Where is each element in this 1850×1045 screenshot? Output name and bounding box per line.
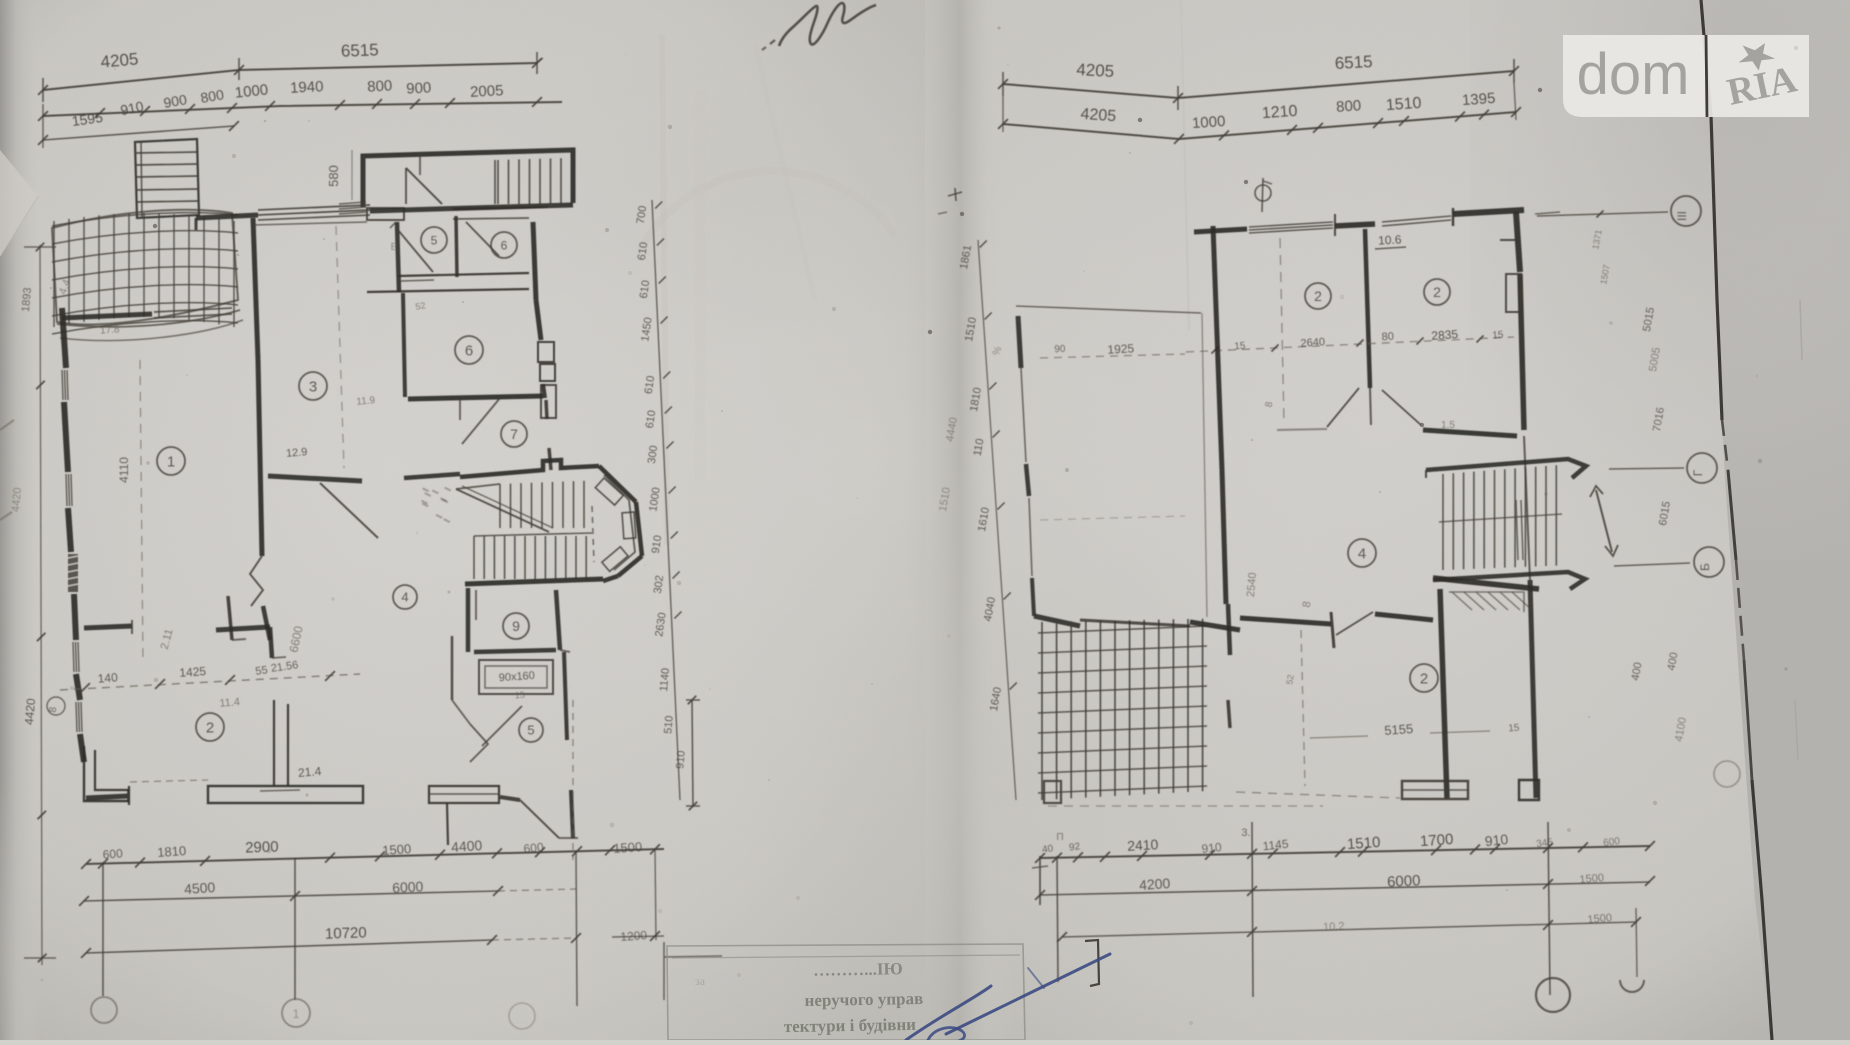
svg-text:10.2: 10.2 [1323, 920, 1345, 933]
svg-text:неручого управ: неручого управ [804, 989, 923, 1010]
svg-text:9: 9 [512, 618, 520, 634]
svg-text:Б: Б [1698, 563, 1712, 571]
svg-text:800: 800 [367, 77, 393, 95]
svg-text:III: III [1675, 211, 1689, 221]
svg-text:12.9: 12.9 [286, 446, 308, 460]
svg-text:1000: 1000 [234, 81, 269, 101]
svg-text:90x160: 90x160 [498, 670, 535, 684]
svg-text:11.4: 11.4 [219, 696, 241, 710]
svg-text:1940: 1940 [290, 78, 324, 97]
svg-text:2: 2 [206, 719, 214, 736]
svg-text:700: 700 [635, 205, 649, 225]
svg-text:4420: 4420 [22, 697, 38, 725]
svg-text:3: 3 [309, 378, 317, 395]
svg-text:302: 302 [652, 575, 666, 595]
svg-text:80: 80 [1381, 331, 1394, 344]
svg-text:………...ІЮ: ………...ІЮ [813, 959, 903, 980]
svg-text:21.4: 21.4 [297, 764, 322, 780]
svg-text:92: 92 [1068, 841, 1081, 854]
svg-text:1700: 1700 [1419, 831, 1453, 850]
svg-text:610: 610 [636, 241, 650, 261]
svg-text:1925: 1925 [1107, 341, 1135, 356]
svg-text:10720: 10720 [325, 924, 367, 942]
svg-text:2005: 2005 [470, 82, 504, 101]
svg-text:6: 6 [501, 238, 508, 252]
svg-text:4205: 4205 [100, 49, 139, 71]
svg-text:2: 2 [1433, 284, 1441, 300]
svg-text:4200: 4200 [1139, 875, 1171, 893]
svg-text:580: 580 [326, 165, 341, 187]
svg-text:52: 52 [1284, 674, 1296, 686]
svg-text:910: 910 [650, 534, 664, 554]
svg-text:6000: 6000 [392, 878, 424, 896]
svg-text:1500: 1500 [1587, 912, 1612, 926]
svg-text:dom: dom [1577, 42, 1690, 107]
svg-text:6: 6 [465, 342, 473, 359]
svg-text:2540: 2540 [1245, 572, 1259, 597]
svg-text:900: 900 [406, 79, 432, 97]
svg-text:15: 15 [1508, 723, 1520, 735]
svg-text:4400: 4400 [451, 837, 483, 855]
svg-text:600: 600 [102, 846, 123, 861]
svg-text:тектури і будівни: тектури і будівни [784, 1015, 917, 1036]
svg-text:1510: 1510 [1385, 95, 1422, 114]
svg-text:1: 1 [293, 1007, 300, 1021]
svg-text:1893: 1893 [20, 287, 34, 312]
svg-text:E: E [391, 242, 398, 253]
svg-text:17.8: 17.8 [100, 324, 121, 336]
svg-text:1210: 1210 [1261, 103, 1298, 122]
svg-text:55: 55 [255, 664, 269, 678]
svg-text:510: 510 [662, 715, 676, 734]
svg-text:15: 15 [1234, 341, 1246, 353]
svg-text:910: 910 [1201, 840, 1223, 856]
svg-text:1510: 1510 [1346, 834, 1380, 853]
svg-text:П: П [1056, 832, 1063, 843]
svg-text:52: 52 [415, 300, 427, 312]
svg-text:2: 2 [1314, 288, 1322, 304]
svg-text:6000: 6000 [1387, 872, 1421, 891]
svg-text:6515: 6515 [341, 40, 379, 60]
svg-text:1395: 1395 [1461, 90, 1495, 109]
svg-text:2: 2 [1420, 670, 1428, 687]
svg-text:910: 910 [674, 750, 688, 769]
svg-text:4205: 4205 [1076, 60, 1115, 81]
svg-text:4205: 4205 [1080, 106, 1117, 125]
svg-text:5: 5 [431, 233, 438, 247]
svg-text:610: 610 [643, 375, 657, 395]
svg-text:600: 600 [523, 840, 545, 856]
svg-text:610: 610 [638, 279, 652, 299]
svg-text:4: 4 [401, 590, 408, 605]
svg-text:1140: 1140 [658, 667, 672, 692]
svg-text:5155: 5155 [1384, 721, 1414, 738]
svg-text:40: 40 [1041, 843, 1054, 856]
svg-text:4: 4 [1358, 545, 1366, 562]
svg-text:910: 910 [1484, 831, 1509, 849]
svg-text:4500: 4500 [184, 879, 216, 897]
svg-text:300: 300 [646, 445, 660, 465]
svg-text:за: за [695, 974, 706, 988]
svg-text:1500: 1500 [613, 839, 643, 856]
svg-text:4110: 4110 [117, 457, 131, 483]
svg-text:1000: 1000 [1191, 113, 1225, 132]
svg-text:15: 15 [514, 690, 525, 701]
svg-text:6515: 6515 [1334, 52, 1373, 73]
svg-text:1500: 1500 [382, 841, 412, 858]
svg-text:1425: 1425 [179, 664, 207, 680]
svg-text:3.: 3. [1241, 827, 1250, 839]
svg-text:2900: 2900 [245, 838, 279, 856]
svg-text:2410: 2410 [1127, 836, 1159, 854]
svg-text:2835: 2835 [1431, 327, 1459, 343]
svg-text:90: 90 [1054, 344, 1066, 356]
svg-text:2640: 2640 [1300, 336, 1325, 350]
svg-text:610: 610 [644, 409, 658, 429]
svg-text:1810: 1810 [157, 843, 187, 860]
svg-text:15: 15 [1492, 330, 1504, 342]
svg-text:1.5: 1.5 [1441, 420, 1455, 431]
svg-text:1500: 1500 [1579, 872, 1604, 886]
svg-text:4420: 4420 [10, 487, 24, 512]
svg-text:5: 5 [527, 723, 534, 738]
svg-text:2: 2 [1317, 171, 1323, 183]
svg-text:140: 140 [97, 670, 118, 685]
svg-text:1145: 1145 [1262, 837, 1289, 854]
svg-text:800: 800 [1336, 97, 1362, 116]
svg-text:11.9: 11.9 [356, 395, 376, 408]
svg-text:10.6: 10.6 [1378, 232, 1402, 247]
svg-text:Г: Г [1691, 469, 1705, 476]
svg-text:1: 1 [167, 453, 175, 470]
svg-text:7: 7 [510, 426, 518, 442]
